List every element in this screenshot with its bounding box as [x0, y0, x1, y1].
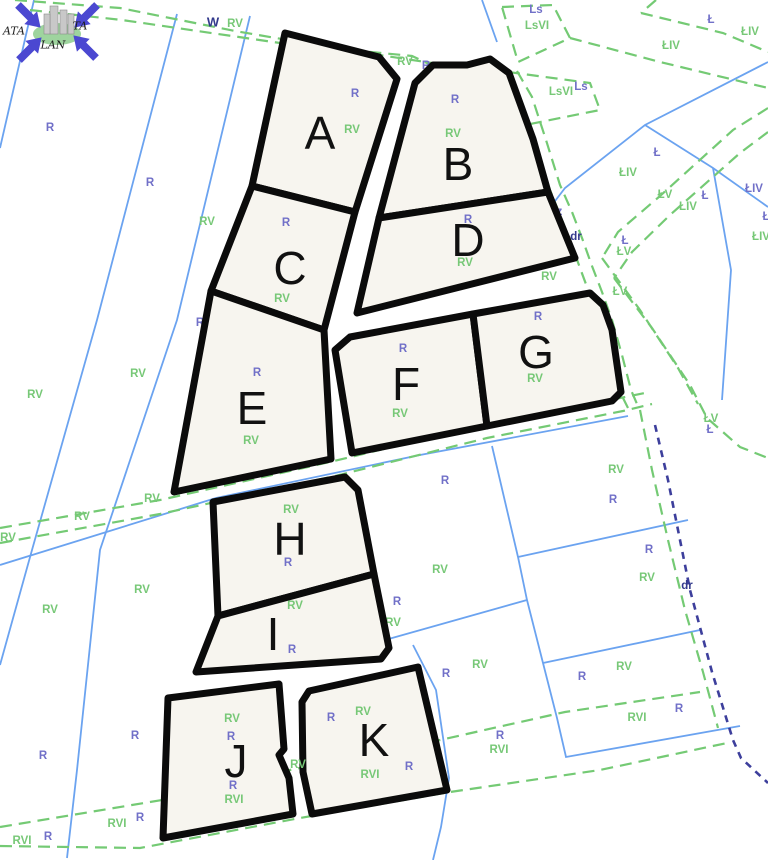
landuse-label: R	[282, 217, 291, 229]
landuse-label: RV	[74, 511, 90, 523]
landuse-label: RV	[243, 435, 259, 447]
parcel-C-letter: C	[273, 242, 306, 294]
landuse-label: RV	[290, 759, 306, 771]
road-dashed-line	[655, 425, 768, 783]
parcel-K-letter: K	[359, 714, 390, 766]
landuse-label: R	[131, 730, 140, 742]
landuse-label: RVI	[108, 818, 127, 830]
landuse-label: Ł	[762, 211, 768, 223]
logo-building-icon	[50, 6, 58, 34]
landuse-label: R	[146, 177, 155, 189]
parcel-F-letter: F	[392, 358, 420, 410]
landuse-label: dr	[570, 231, 582, 243]
cadastral-boundary-line	[492, 446, 740, 757]
landuse-label: Ł	[701, 190, 708, 202]
landuse-label: R	[442, 668, 451, 680]
parcel-I-letter: I	[267, 608, 280, 660]
logo-text: TA	[73, 20, 88, 33]
logo-watermark: ATATALAN	[2, 0, 103, 66]
logo-text: LAN	[40, 39, 66, 52]
landuse-label: R	[496, 730, 505, 742]
logo-building-icon	[44, 14, 50, 34]
landuse-label: R	[253, 367, 262, 379]
parcel-J-letter: J	[225, 735, 248, 787]
landuse-label: R	[441, 475, 450, 487]
landuse-label: RV	[608, 464, 624, 476]
landuse-label: ŁV	[658, 189, 673, 201]
landuse-label: RV	[616, 661, 632, 673]
landuse-label: RV	[224, 713, 240, 725]
landuse-label: ŁIV	[619, 167, 637, 179]
landuse-label: ŁIV	[741, 26, 759, 38]
landuse-label: R	[44, 831, 53, 843]
landuse-label: R	[534, 311, 543, 323]
landuse-label: R	[288, 644, 297, 656]
landuse-label: ŁIV	[662, 40, 680, 52]
landuse-label: R	[351, 88, 360, 100]
landuse-label: R	[645, 544, 654, 556]
landuse-label: RV	[42, 604, 58, 616]
parcel-G-letter: G	[518, 326, 554, 378]
cadastral-boundary-line	[385, 600, 527, 640]
parcel-H-letter: H	[273, 513, 306, 565]
landuse-label: R	[393, 596, 402, 608]
landuse-label: Ls	[574, 81, 587, 93]
landuse-label: W	[207, 15, 220, 30]
cadastral-boundary-line	[543, 630, 700, 663]
landuse-label: ŁV	[613, 286, 628, 298]
landuse-label: R	[405, 761, 414, 773]
landuse-label: RV	[274, 293, 290, 305]
landuse-label: RVI	[490, 744, 509, 756]
landuse-label: RV	[472, 659, 488, 671]
landuse-label: RV	[287, 600, 303, 612]
landuse-label: RV	[144, 493, 160, 505]
landuse-label: ŁIV	[752, 231, 768, 243]
landuse-contour-line	[640, 410, 718, 728]
cadastral-boundary-line	[482, 0, 497, 42]
parcel-E-letter: E	[237, 382, 268, 434]
landuse-label: Ls	[529, 4, 542, 16]
landuse-label: RV	[27, 389, 43, 401]
landuse-contour-line	[641, 0, 656, 13]
logo-building-icon	[60, 10, 67, 34]
landuse-label: Ł	[653, 147, 660, 159]
landuse-label: LsVI	[525, 20, 549, 32]
landuse-label: R	[675, 703, 684, 715]
cadastral-map-viewport: WRVRRRVRRVRVRVRVRVRVRVRRRVIRRVIRRVRLsLsV…	[0, 0, 768, 860]
landuse-label: dr	[681, 580, 693, 592]
landuse-label: Ł	[707, 14, 714, 26]
cadastral-boundary-line	[0, 14, 177, 665]
parcel-D-letter: D	[451, 214, 484, 266]
landuse-label: RV	[199, 216, 215, 228]
landuse-label: LsVI	[549, 86, 573, 98]
cadastral-map: WRVRRRVRRVRVRVRVRVRVRVRRRVIRRVIRRVRLsLsV…	[0, 0, 768, 860]
landuse-label: ŁIV	[745, 183, 763, 195]
landuse-label: RV	[344, 124, 360, 136]
landuse-label: RV	[541, 271, 557, 283]
landuse-label: RV	[397, 56, 413, 68]
landuse-label: RV	[0, 532, 16, 544]
landuse-label: ŁV	[617, 246, 632, 258]
landuse-label: RVI	[628, 712, 647, 724]
landuse-label: R	[39, 750, 48, 762]
landuse-label: ŁIV	[679, 201, 697, 213]
landuse-label: RVI	[361, 769, 380, 781]
landuse-label: RV	[227, 18, 243, 30]
landuse-label: RVI	[225, 794, 244, 806]
landuse-label: Ł	[706, 424, 713, 436]
landuse-label: RV	[134, 584, 150, 596]
landuse-label: R	[451, 94, 460, 106]
landuse-label: R	[136, 812, 145, 824]
landuse-label: RV	[432, 564, 448, 576]
landuse-label: R	[399, 343, 408, 355]
landuse-label: R	[46, 122, 55, 134]
logo-text: ATA	[2, 25, 25, 38]
landuse-label: RV	[639, 572, 655, 584]
landuse-label: RV	[130, 368, 146, 380]
landuse-label: RVI	[13, 835, 32, 847]
cadastral-boundary-line	[518, 520, 688, 557]
landuse-label: R	[578, 671, 587, 683]
parcel-A-letter: A	[305, 107, 336, 159]
landuse-label: R	[609, 494, 618, 506]
landuse-label: R	[327, 712, 336, 724]
cadastral-boundary-line	[713, 168, 731, 400]
parcel-B-letter: B	[443, 138, 474, 190]
